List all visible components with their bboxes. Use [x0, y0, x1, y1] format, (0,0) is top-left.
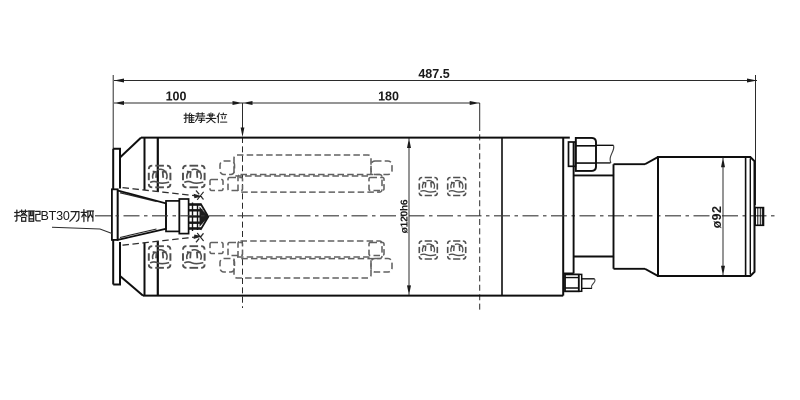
- svg-text:ø92: ø92: [710, 206, 724, 229]
- svg-text:BT30: BT30: [41, 209, 70, 223]
- svg-text:180: 180: [378, 90, 399, 104]
- svg-text:487.5: 487.5: [418, 67, 449, 81]
- svg-text:ø120h6: ø120h6: [400, 199, 411, 233]
- svg-text:100: 100: [166, 90, 187, 104]
